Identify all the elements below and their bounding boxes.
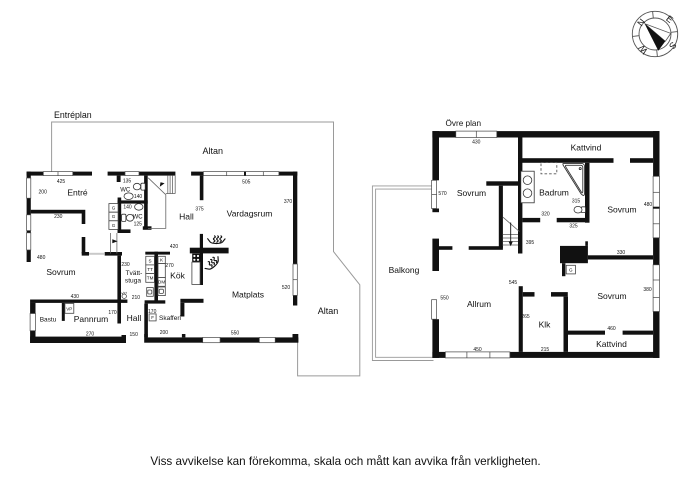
- svg-text:230: 230: [121, 262, 130, 268]
- svg-text:Entré: Entré: [67, 188, 88, 198]
- svg-text:Skafferi: Skafferi: [159, 315, 181, 322]
- svg-text:215: 215: [541, 347, 550, 353]
- svg-text:Viss avvikelse kan förekomma,: Viss avvikelse kan förekomma, skala och …: [150, 455, 540, 468]
- svg-text:S: S: [149, 258, 152, 263]
- svg-text:325: 325: [569, 223, 578, 229]
- svg-text:430: 430: [472, 139, 481, 145]
- svg-text:TM: TM: [147, 276, 154, 281]
- svg-text:G: G: [112, 223, 116, 228]
- svg-text:Badrum: Badrum: [539, 188, 569, 198]
- svg-text:320: 320: [541, 211, 550, 217]
- svg-text:stuga: stuga: [125, 278, 141, 285]
- svg-text:Hall: Hall: [127, 313, 142, 323]
- svg-text:450: 450: [473, 347, 482, 353]
- svg-text:Bastu: Bastu: [40, 316, 57, 323]
- svg-text:TT: TT: [147, 267, 153, 272]
- svg-text:G: G: [112, 206, 116, 211]
- svg-text:480: 480: [37, 255, 46, 261]
- svg-text:DM: DM: [158, 280, 165, 285]
- svg-text:140: 140: [134, 194, 143, 200]
- svg-text:265: 265: [521, 314, 530, 320]
- svg-text:Tvätt-: Tvätt-: [125, 270, 142, 277]
- svg-text:Kök: Kök: [170, 271, 185, 281]
- svg-text:270: 270: [86, 331, 95, 337]
- svg-text:Entréplan: Entréplan: [54, 110, 92, 120]
- svg-text:370: 370: [284, 199, 293, 205]
- svg-text:140: 140: [123, 204, 132, 210]
- svg-text:230: 230: [54, 214, 63, 220]
- svg-text:Sovrum: Sovrum: [46, 267, 75, 277]
- svg-text:430: 430: [71, 294, 80, 300]
- svg-text:505: 505: [242, 179, 251, 185]
- svg-text:380: 380: [643, 287, 652, 293]
- svg-text:420: 420: [170, 244, 179, 250]
- svg-text:Sovrum: Sovrum: [597, 291, 626, 301]
- svg-text:Altan: Altan: [202, 146, 223, 156]
- svg-text:170: 170: [108, 310, 117, 316]
- svg-text:125: 125: [134, 222, 143, 228]
- svg-text:375: 375: [195, 206, 204, 212]
- svg-text:210: 210: [132, 295, 141, 301]
- svg-text:150: 150: [130, 332, 139, 338]
- svg-text:Hall: Hall: [179, 212, 194, 222]
- svg-text:Klk: Klk: [539, 320, 552, 330]
- svg-text:460: 460: [607, 326, 616, 332]
- svg-text:WC: WC: [133, 215, 144, 221]
- svg-text:G: G: [569, 267, 573, 272]
- svg-text:550: 550: [440, 295, 449, 301]
- svg-text:550: 550: [231, 330, 240, 336]
- svg-text:Övre plan: Övre plan: [446, 118, 482, 128]
- svg-text:WC: WC: [120, 188, 131, 194]
- svg-text:Altan: Altan: [318, 306, 339, 316]
- svg-text:330: 330: [617, 250, 626, 256]
- svg-text:F: F: [151, 315, 154, 320]
- svg-text:Kattvind: Kattvind: [571, 143, 602, 153]
- svg-text:VP: VP: [66, 306, 72, 311]
- svg-text:135: 135: [123, 178, 132, 184]
- svg-text:200: 200: [39, 190, 48, 196]
- svg-text:Pannrum: Pannrum: [74, 314, 109, 324]
- svg-text:570: 570: [438, 191, 447, 197]
- svg-text:170: 170: [148, 309, 157, 315]
- svg-text:Balkong: Balkong: [389, 265, 420, 275]
- svg-text:Sovrum: Sovrum: [457, 188, 486, 198]
- svg-text:Vardagsrum: Vardagsrum: [227, 208, 273, 218]
- svg-text:Sovrum: Sovrum: [607, 205, 636, 215]
- svg-text:545: 545: [509, 280, 518, 286]
- svg-text:270: 270: [165, 263, 174, 269]
- svg-text:425: 425: [57, 179, 66, 185]
- svg-text:200: 200: [160, 330, 169, 336]
- svg-text:G: G: [112, 214, 116, 219]
- svg-text:Matplats: Matplats: [232, 289, 264, 299]
- svg-text:Allrum: Allrum: [467, 299, 491, 309]
- svg-text:Kattvind: Kattvind: [596, 339, 627, 349]
- svg-text:395: 395: [526, 240, 535, 246]
- svg-text:520: 520: [282, 285, 291, 291]
- svg-text:315: 315: [572, 198, 581, 204]
- svg-text:480: 480: [644, 202, 653, 208]
